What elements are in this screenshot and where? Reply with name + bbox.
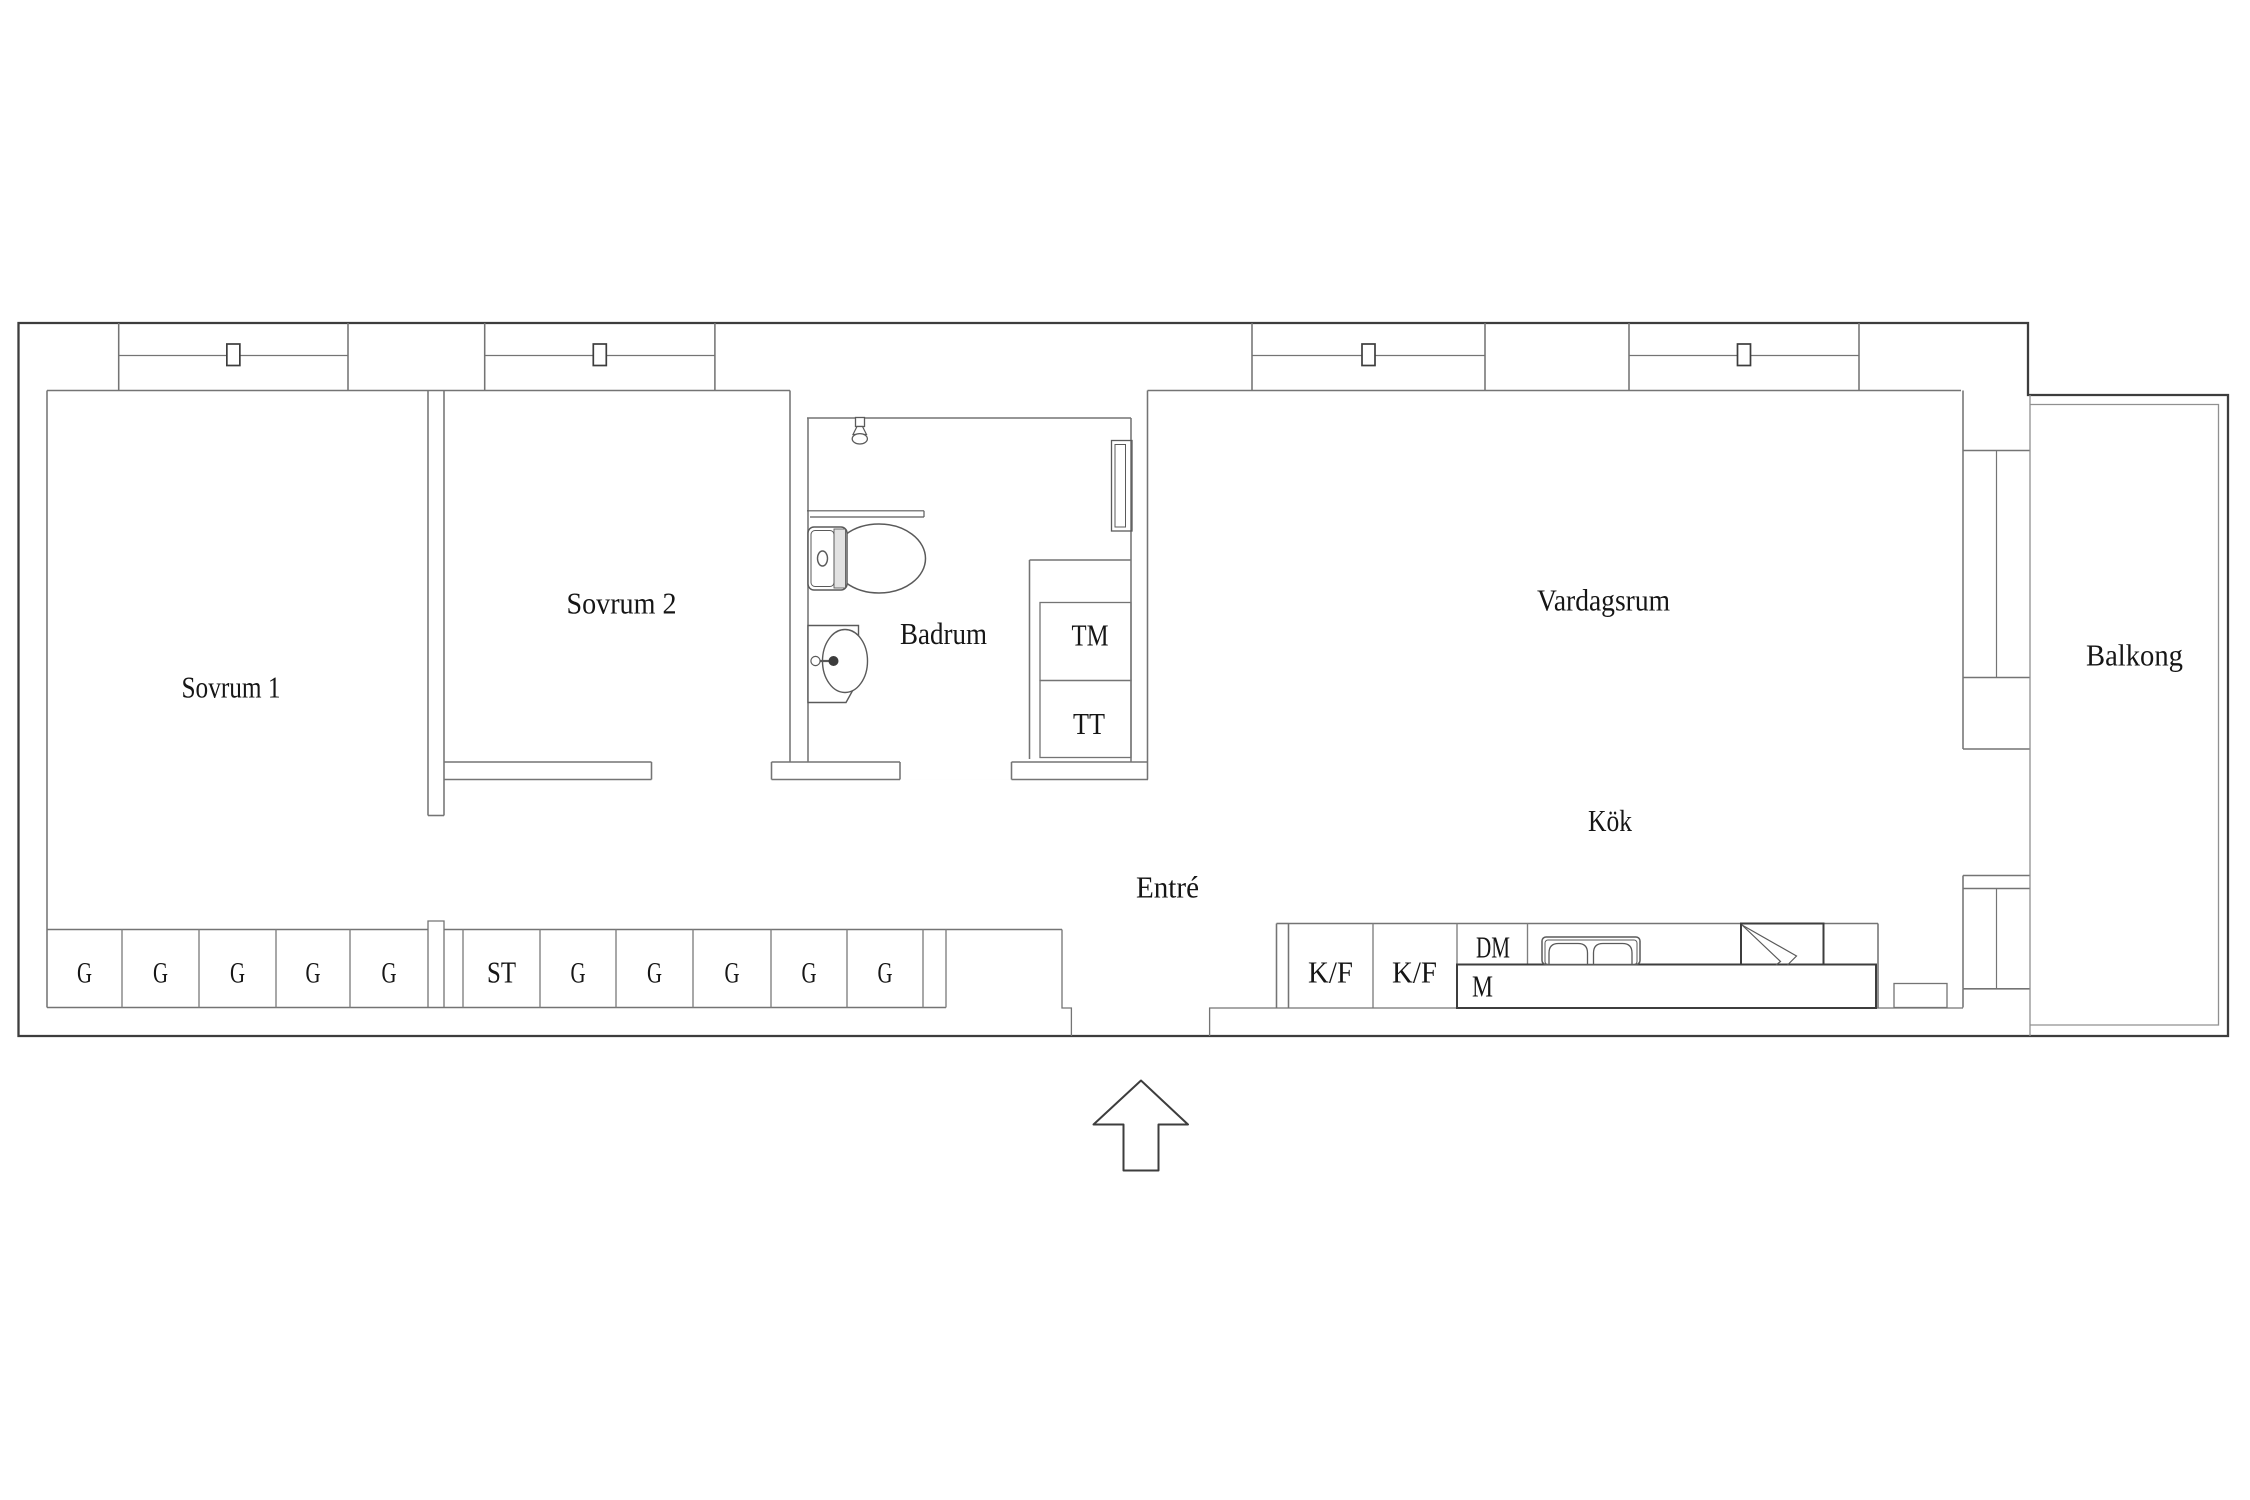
svg-text:Balkong: Balkong <box>2086 638 2183 673</box>
svg-text:G: G <box>230 958 245 990</box>
svg-text:DM: DM <box>1476 930 1510 965</box>
svg-text:K/F: K/F <box>1308 955 1353 990</box>
svg-text:ST: ST <box>487 955 516 990</box>
svg-text:G: G <box>77 958 92 990</box>
svg-text:TM: TM <box>1072 618 1109 653</box>
svg-text:G: G <box>725 958 740 990</box>
svg-text:G: G <box>647 958 662 990</box>
svg-text:G: G <box>802 958 817 990</box>
svg-text:G: G <box>878 958 893 990</box>
svg-text:Vardagsrum: Vardagsrum <box>1537 583 1670 618</box>
svg-text:Kök: Kök <box>1588 803 1632 838</box>
svg-text:Sovrum 2: Sovrum 2 <box>567 586 677 621</box>
svg-text:G: G <box>571 958 586 990</box>
svg-text:G: G <box>153 958 168 990</box>
svg-text:TT: TT <box>1073 706 1105 741</box>
svg-text:Badrum: Badrum <box>900 616 987 651</box>
svg-text:K/F: K/F <box>1392 955 1437 990</box>
svg-text:Sovrum 1: Sovrum 1 <box>182 670 281 705</box>
svg-text:Entré: Entré <box>1136 870 1199 905</box>
svg-text:G: G <box>382 958 397 990</box>
svg-text:M: M <box>1472 969 1493 1004</box>
svg-text:G: G <box>306 958 321 990</box>
